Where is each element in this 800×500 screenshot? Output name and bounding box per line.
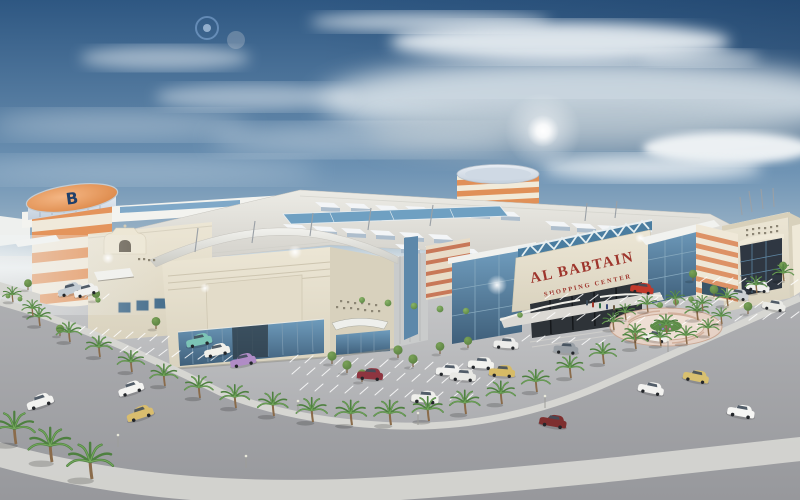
deco-dot — [758, 232, 760, 234]
left-haze — [0, 235, 160, 315]
sun — [527, 115, 559, 147]
glass-slot — [404, 236, 418, 340]
deco-dot — [148, 259, 150, 261]
deco-dot — [357, 308, 359, 310]
glint — [635, 233, 645, 243]
deco-dot — [752, 228, 754, 230]
pedestrian — [592, 302, 594, 308]
light-head — [544, 395, 547, 398]
deco-dot — [770, 231, 772, 233]
deco-dot — [368, 303, 370, 305]
shrub — [95, 297, 100, 302]
shrub — [517, 312, 523, 318]
shopping-center-rendering: B — [0, 0, 800, 500]
light-head — [297, 400, 300, 403]
shrub — [359, 297, 365, 303]
deco-dot — [758, 227, 760, 229]
deco-dot — [153, 259, 155, 261]
deco-dot — [764, 227, 766, 229]
pedestrian — [586, 300, 588, 306]
court-glass-wall — [452, 250, 522, 344]
light-head — [245, 455, 248, 458]
shrub — [437, 306, 444, 313]
deco-dot — [770, 226, 772, 228]
shrub — [463, 308, 469, 314]
light-head — [117, 434, 120, 437]
rendering-stage: B — [0, 0, 800, 500]
shrub — [688, 296, 694, 302]
deco-dot — [746, 229, 748, 231]
shrub — [385, 300, 392, 307]
deco-dot — [378, 310, 380, 312]
deco-dot — [746, 234, 748, 236]
pedestrian — [599, 303, 601, 309]
deco-dot — [752, 233, 754, 235]
tower-logo: B — [65, 188, 80, 209]
deco-dot — [776, 225, 778, 227]
deco-dot — [764, 232, 766, 234]
deco-dot — [375, 304, 377, 306]
deco-dot — [347, 301, 349, 303]
shrub — [18, 297, 23, 302]
shrub — [657, 302, 663, 308]
pedestrian — [606, 304, 608, 310]
glint — [102, 252, 114, 264]
glint — [288, 245, 302, 259]
deco-dot — [364, 309, 366, 311]
deco-dot — [138, 258, 140, 260]
deco-dot — [340, 300, 342, 302]
deco-dot — [336, 306, 338, 308]
deco-dot — [776, 230, 778, 232]
deco-dot — [143, 258, 145, 260]
pedestrian — [613, 305, 615, 311]
deco-dot — [371, 310, 373, 312]
shrub — [411, 303, 418, 310]
light-head — [417, 412, 420, 415]
deco-dot — [354, 302, 356, 304]
glint — [487, 275, 507, 295]
deco-dot — [343, 307, 345, 309]
deco-dot — [350, 307, 352, 309]
glint — [200, 283, 210, 293]
light-head — [667, 339, 670, 342]
